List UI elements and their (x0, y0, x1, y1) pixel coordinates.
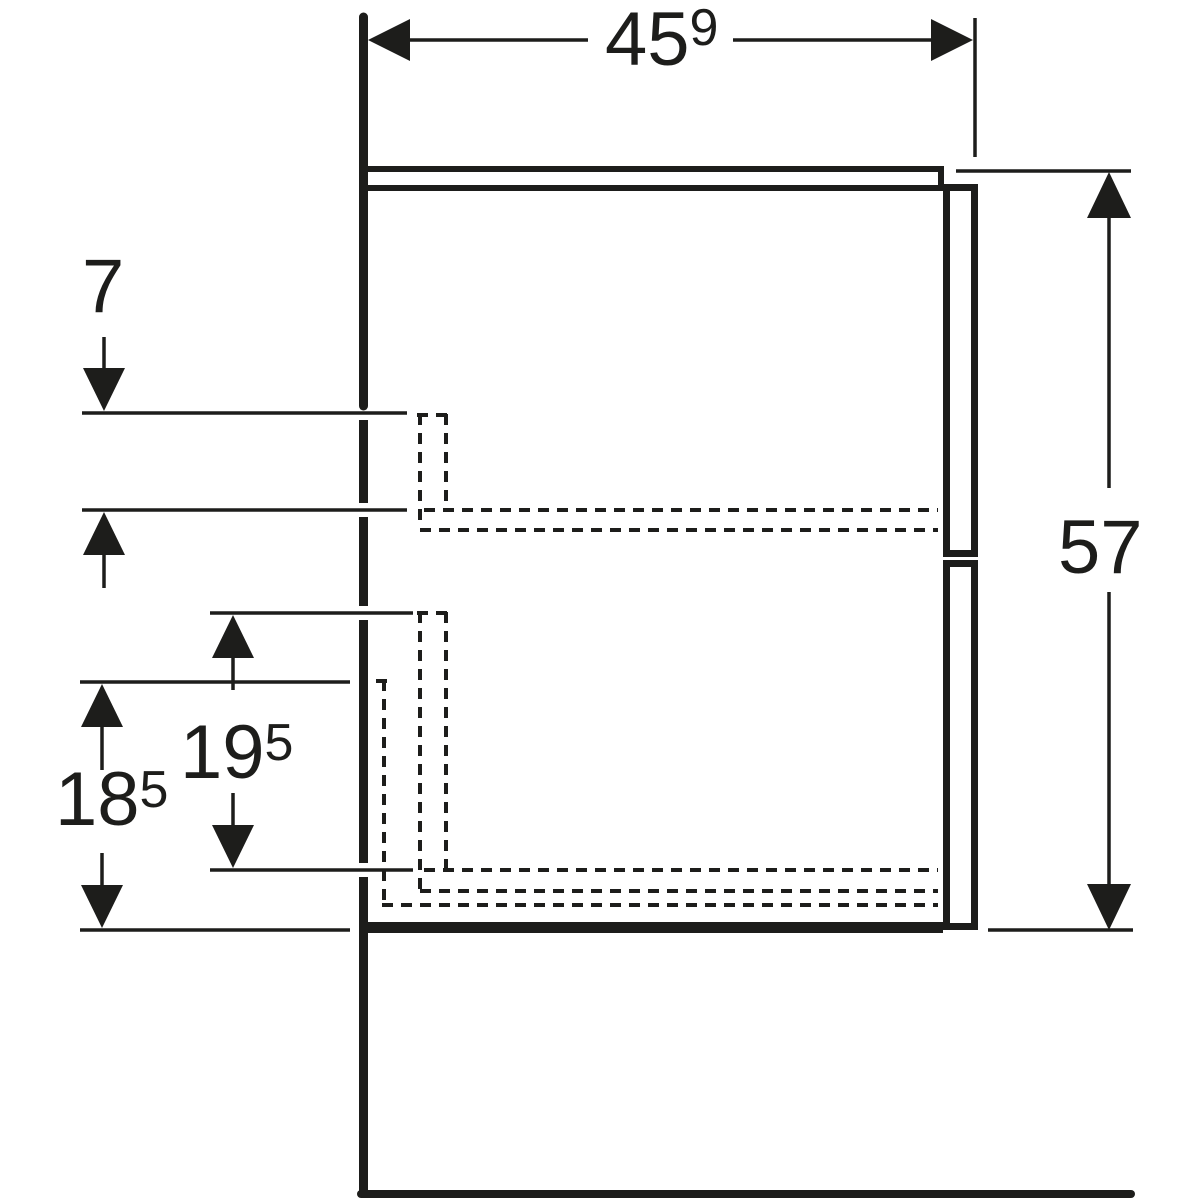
outer-height-arrow-down-icon (81, 885, 123, 928)
dimension-depth: 459 (368, 0, 975, 157)
depth-arrow-right-icon (931, 19, 973, 61)
dimension-top-offset: 7 (82, 244, 407, 588)
hidden-edges (376, 414, 938, 905)
inner-height-arrow-down-icon (212, 825, 254, 868)
cabinet-side-view-drawing: 459 57 7 195 185 (0, 0, 1200, 1200)
cabinet-body (362, 169, 975, 928)
dimension-inner-drawer-height: 195 (180, 613, 413, 870)
cabinet-top-panel (365, 169, 941, 188)
top-offset-dimension-label: 7 (82, 244, 124, 329)
inner-height-arrow-up-icon (212, 615, 254, 658)
lower-drawer-front (947, 564, 975, 927)
inner-height-dimension-label: 195 (180, 710, 293, 795)
depth-dimension-label: 459 (605, 0, 718, 82)
dimension-height: 57 (956, 171, 1143, 930)
depth-arrow-left-icon (368, 19, 410, 61)
top-offset-arrow-up-icon (83, 512, 125, 555)
outer-height-dimension-label: 185 (55, 757, 168, 842)
upper-drawer-front (947, 188, 975, 554)
technical-drawing-canvas: 459 57 7 195 185 (0, 0, 1200, 1200)
height-dimension-label: 57 (1058, 505, 1143, 590)
top-offset-arrow-down-icon (83, 368, 125, 411)
outer-height-arrow-up-icon (81, 684, 123, 727)
height-arrow-top-icon (1087, 172, 1131, 218)
height-arrow-bottom-icon (1087, 884, 1131, 930)
